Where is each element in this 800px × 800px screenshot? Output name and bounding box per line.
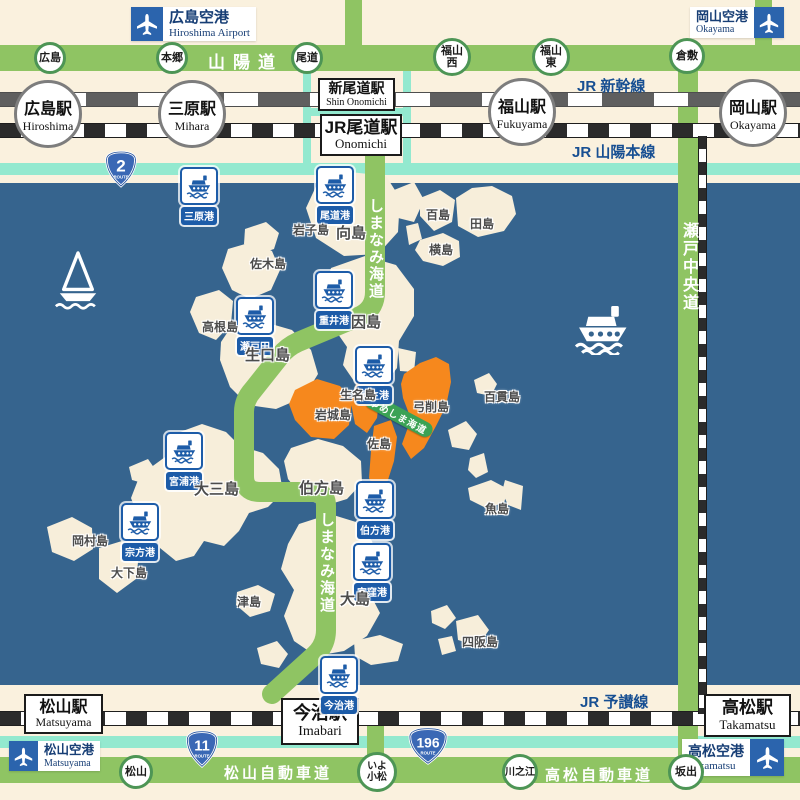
- island-label-shisakajima: 四阪島: [462, 633, 498, 650]
- ferry-icon: [316, 166, 354, 204]
- ic-hongo: 本郷: [156, 42, 188, 74]
- station-name-en: Fukuyama: [497, 117, 548, 132]
- route-word: ROUTE: [420, 751, 435, 756]
- ic-kurashiki: 倉敷: [669, 38, 705, 74]
- ic-onomichi: 尾道: [291, 42, 323, 74]
- ferry-icon: [353, 543, 391, 581]
- island-label-momoshima: 百島: [426, 206, 450, 223]
- island-label-sagishima: 佐木島: [250, 255, 286, 272]
- island-label-oshimojima: 大下島: [111, 564, 147, 581]
- station-name-en: Hiroshima: [23, 119, 74, 134]
- island-label-ikuchijima: 生口島: [245, 344, 290, 365]
- ic-matsuyama: 松山: [119, 755, 153, 789]
- island-label-sashima: 佐島: [367, 435, 391, 452]
- port-munakata: 宗方港: [118, 503, 162, 561]
- port-hakata: 伯方港: [353, 481, 397, 539]
- station-name-en: Okayama: [730, 118, 776, 133]
- ferry-icon: [180, 167, 218, 205]
- ic-iyo-komatsu: いよ 小松: [357, 752, 397, 792]
- station-name-jp: 岡山駅: [729, 94, 777, 118]
- island-label-takaneshima: 高根島: [202, 318, 238, 335]
- ic-sakaide: 坂出: [668, 754, 704, 790]
- station-shin-onomichi: 新尾道駅 Shin Onomichi: [318, 78, 395, 111]
- yosan-line: [0, 711, 800, 726]
- island-label-iwashijima: 岩子島: [293, 221, 329, 238]
- ic-fukuyama-higashi: 福山 東: [532, 38, 570, 76]
- airport-name-en: Okayama: [696, 24, 748, 35]
- island-label-yugeshima: 弓削島: [413, 398, 449, 415]
- ferry-icon: [355, 346, 393, 384]
- port-onomichi: 尾道港: [313, 166, 357, 224]
- airplane-icon: [9, 741, 38, 771]
- island-label-hyakkanjima: 百貫島: [484, 388, 520, 405]
- port-imabari: 今治港: [317, 656, 361, 714]
- port-label: 重井港: [316, 311, 352, 329]
- station-jr-onomichi: JR尾道駅 Onomichi: [320, 114, 402, 156]
- station-name-en: Takamatsu: [719, 718, 775, 732]
- shimanami-kaido-label-south: しまなみ海道: [317, 512, 336, 614]
- sanyo-expressway-label: 山陽道: [208, 48, 283, 73]
- port-label: 宗方港: [122, 543, 158, 561]
- island-label-mukaishima: 向島: [336, 222, 366, 243]
- takamatsu-expressway-label: 高松自動車道: [545, 764, 653, 785]
- yosan-line-label: JR 予讃線: [580, 691, 648, 712]
- route-11-shield: 11 ROUTE: [184, 730, 220, 768]
- station-name-en: Shin Onomichi: [326, 97, 387, 108]
- station-takamatsu: 高松駅 Takamatsu: [704, 694, 791, 737]
- route-196-shield: 196 ROUTE: [406, 727, 450, 765]
- shinkansen-line: [0, 92, 800, 107]
- airplane-icon: [750, 739, 784, 776]
- airport-name-en: Hiroshima Airport: [169, 27, 250, 39]
- station-name-jp: 松山駅: [39, 699, 87, 717]
- shinkansen-label: JR 新幹線: [577, 75, 645, 96]
- station-name-en: Onomichi: [335, 137, 387, 151]
- station-name-en: Imabari: [298, 724, 342, 739]
- hiroshima-airport-sign: 広島空港Hiroshima Airport: [131, 7, 256, 41]
- station-hiroshima: 広島駅 Hiroshima: [14, 80, 82, 148]
- sailboat-icon: [52, 248, 104, 310]
- port-mihara: 三原港: [177, 167, 221, 225]
- route-word: ROUTE: [194, 754, 209, 759]
- station-name-en: Mihara: [175, 119, 210, 134]
- station-name-jp: JR尾道駅: [325, 119, 398, 138]
- ic-hiroshima: 広島: [34, 42, 66, 74]
- airplane-icon: [131, 7, 163, 41]
- island-label-hakatajima: 伯方島: [299, 477, 344, 498]
- route-number: 11: [194, 739, 210, 755]
- ferry-icon: [165, 432, 203, 470]
- island-label-innoshima: 因島: [351, 311, 381, 332]
- station-name-jp: 高松駅: [722, 699, 773, 718]
- station-name-jp: 広島駅: [24, 95, 72, 119]
- ferry-icon: [236, 297, 274, 335]
- island-label-oshima: 大島: [340, 588, 370, 609]
- ferry-icon: [356, 481, 394, 519]
- shimanami-access-map: { "title": "しまなみ・ゆめしま海道 アクセスマップ", "airpo…: [0, 0, 800, 800]
- route-2-shield: 2 ROUTE: [104, 150, 138, 188]
- port-label: 今治港: [321, 696, 357, 714]
- ic-kawanoe: 川之江: [502, 754, 538, 790]
- island-label-ikinajima: 生名島: [340, 386, 376, 403]
- station-name-jp: 三原駅: [168, 95, 216, 119]
- okayama-airport-sign: 岡山空港Okayama: [690, 7, 784, 38]
- station-okayama: 岡山駅 Okayama: [719, 79, 787, 147]
- route-number: 196: [416, 735, 439, 751]
- route-word: ROUTE: [114, 174, 129, 179]
- island-label-tajima: 田島: [470, 215, 494, 232]
- port-label: 伯方港: [357, 521, 393, 539]
- station-name-jp: 新尾道駅: [329, 81, 385, 96]
- station-name-en: Matsuyama: [36, 716, 92, 729]
- seto-ohashi-line: [698, 136, 707, 714]
- station-name-jp: 福山駅: [498, 93, 546, 117]
- port-shigei: 重井港: [312, 271, 356, 329]
- seto-chuo-expressway-label: 瀬戸中央道: [679, 222, 698, 312]
- island-label-omishima: 大三島: [194, 478, 239, 499]
- shimanami-kaido-label-north: しまなみ海道: [366, 198, 385, 300]
- island-label-yokoshima: 横島: [429, 241, 453, 258]
- ferry-icon: [315, 271, 353, 309]
- airport-name-jp: 松山空港: [44, 743, 94, 757]
- airport-name-en: Matsuyama: [44, 758, 94, 769]
- route-number: 2: [116, 157, 125, 176]
- island-label-okamurajima: 岡村島: [72, 532, 108, 549]
- matsuyama-expressway-label: 松山自動車道: [224, 762, 332, 783]
- station-matsuyama: 松山駅 Matsuyama: [24, 694, 103, 734]
- airport-name-jp: 岡山空港: [696, 10, 748, 25]
- sanyo-main-line-label: JR 山陽本線: [572, 141, 655, 162]
- ic-fukuyama-nishi: 福山 西: [433, 38, 471, 76]
- island-label-tsushima: 津島: [237, 593, 261, 610]
- matsuyama-airport-sign: 松山空港Matsuyama: [9, 741, 100, 771]
- ferry-icon: [320, 656, 358, 694]
- station-fukuyama: 福山駅 Fukuyama: [488, 78, 556, 146]
- ferry-ship-icon: [570, 303, 634, 355]
- island-label-uoshima: 魚島: [485, 500, 509, 517]
- island-label-iwagijima: 岩城島: [315, 406, 351, 423]
- airplane-icon: [754, 7, 784, 38]
- station-mihara: 三原駅 Mihara: [158, 80, 226, 148]
- port-label: 三原港: [181, 207, 217, 225]
- ferry-icon: [121, 503, 159, 541]
- airport-name-jp: 広島空港: [169, 9, 250, 26]
